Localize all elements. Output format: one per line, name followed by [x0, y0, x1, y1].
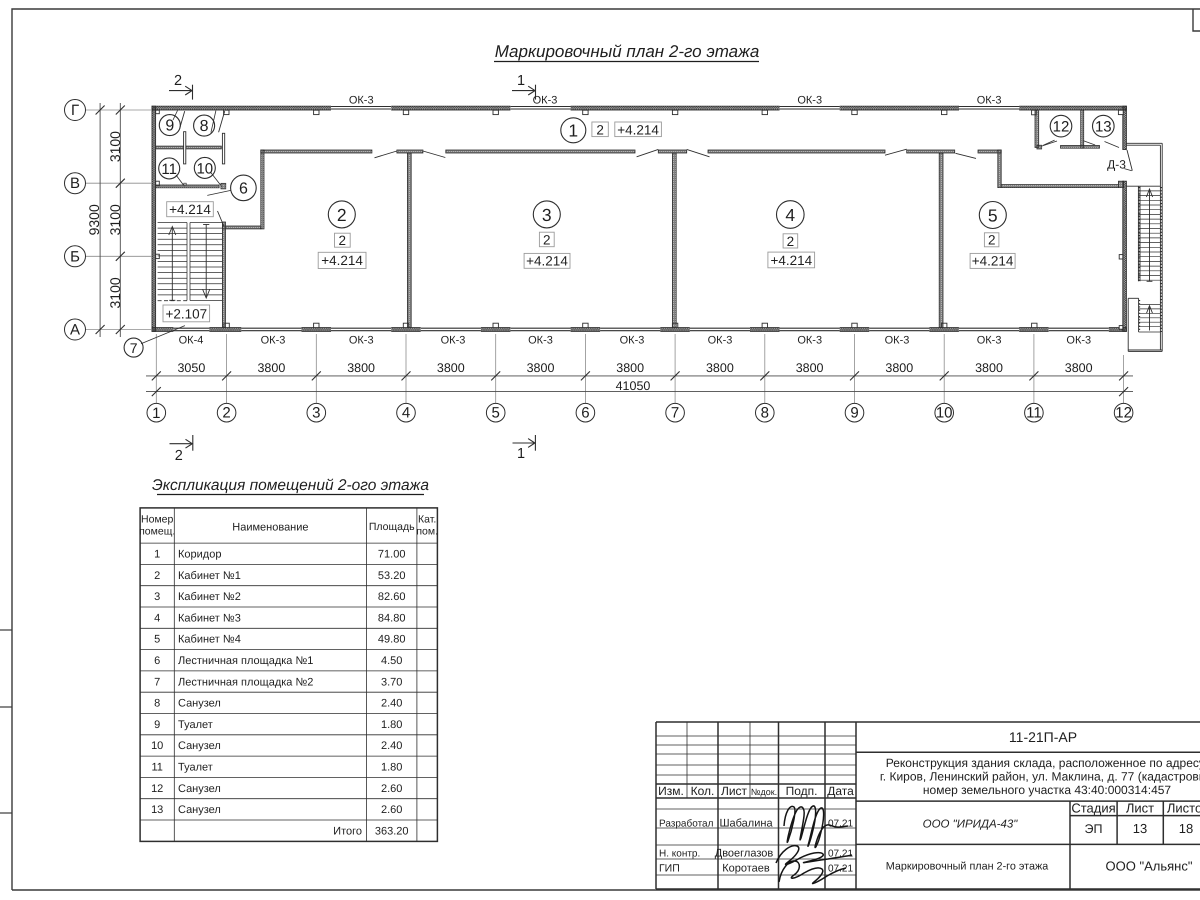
- svg-text:5: 5: [154, 634, 160, 646]
- svg-text:Реконструкция здания склада, р: Реконструкция здания склада, расположенн…: [886, 756, 1200, 770]
- svg-text:1: 1: [152, 405, 160, 422]
- svg-text:6: 6: [581, 404, 589, 421]
- svg-text:ОК-3: ОК-3: [620, 335, 645, 347]
- svg-text:Г: Г: [71, 102, 79, 119]
- svg-text:41050: 41050: [616, 379, 651, 393]
- svg-text:Н. контр.: Н. контр.: [659, 849, 700, 860]
- svg-text:ОК-4: ОК-4: [179, 335, 204, 347]
- svg-text:8: 8: [154, 698, 160, 710]
- svg-text:Кабинет №2: Кабинет №2: [178, 591, 241, 603]
- svg-text:363.20: 363.20: [375, 825, 409, 837]
- svg-text:3100: 3100: [107, 131, 123, 162]
- svg-text:11: 11: [1026, 404, 1042, 421]
- svg-text:9: 9: [165, 118, 174, 135]
- svg-text:3800: 3800: [706, 361, 734, 375]
- svg-text:ОК-3: ОК-3: [797, 94, 822, 106]
- svg-text:ООО "Альянс": ООО "Альянс": [1106, 859, 1193, 874]
- svg-text:г. Киров, Ленинский район, ул.: г. Киров, Ленинский район, ул. Маклина, …: [880, 770, 1200, 784]
- svg-text:+4.214: +4.214: [617, 122, 659, 137]
- svg-text:8: 8: [200, 118, 209, 135]
- svg-text:Д-3: Д-3: [1107, 157, 1126, 171]
- svg-text:Санузел: Санузел: [178, 698, 221, 710]
- svg-text:Шабалина: Шабалина: [719, 818, 773, 830]
- svg-text:Лист: Лист: [1126, 800, 1154, 815]
- svg-text:ОК-3: ОК-3: [441, 335, 466, 347]
- svg-text:49.80: 49.80: [378, 634, 406, 646]
- svg-text:ОК-3: ОК-3: [261, 335, 286, 347]
- svg-text:12: 12: [1053, 119, 1070, 136]
- svg-text:3: 3: [154, 591, 160, 603]
- svg-text:Номер: Номер: [141, 514, 173, 526]
- svg-text:13: 13: [151, 804, 163, 816]
- svg-text:5: 5: [492, 404, 500, 421]
- svg-text:Итого: Итого: [333, 825, 362, 837]
- svg-text:9300: 9300: [86, 204, 102, 235]
- svg-text:07.21: 07.21: [828, 819, 853, 830]
- svg-text:Листов: Листов: [1167, 800, 1200, 815]
- svg-text:1: 1: [517, 73, 525, 89]
- svg-text:53.20: 53.20: [378, 570, 406, 582]
- svg-text:Лестничная площадка №1: Лестничная площадка №1: [178, 655, 313, 667]
- svg-text:Кабинет №1: Кабинет №1: [178, 570, 241, 582]
- svg-text:13: 13: [1095, 119, 1112, 136]
- svg-text:12: 12: [1115, 404, 1132, 421]
- svg-text:Наименование: Наименование: [232, 522, 308, 534]
- svg-text:Туалет: Туалет: [178, 719, 213, 731]
- svg-text:3100: 3100: [107, 204, 123, 235]
- svg-text:2.60: 2.60: [381, 783, 402, 795]
- svg-text:Лист: Лист: [721, 784, 748, 798]
- svg-text:+2.107: +2.107: [165, 306, 207, 321]
- svg-text:8: 8: [761, 404, 769, 421]
- svg-text:4: 4: [154, 612, 160, 624]
- svg-text:1.80: 1.80: [381, 719, 402, 731]
- svg-text:2: 2: [787, 234, 795, 249]
- svg-text:3100: 3100: [107, 277, 123, 308]
- svg-text:Б: Б: [70, 248, 80, 265]
- svg-text:Лестничная площадка №2: Лестничная площадка №2: [178, 676, 313, 688]
- svg-text:+4.214: +4.214: [770, 253, 812, 268]
- svg-text:Маркировочный план 2-го этажа: Маркировочный план 2-го этажа: [495, 42, 760, 61]
- svg-text:1: 1: [517, 446, 525, 462]
- svg-text:2: 2: [174, 73, 182, 89]
- svg-text:ОК-3: ОК-3: [533, 94, 558, 106]
- svg-text:2.40: 2.40: [381, 698, 402, 710]
- svg-text:Кат.: Кат.: [418, 514, 436, 526]
- svg-text:ГИП: ГИП: [659, 863, 680, 875]
- svg-text:9: 9: [850, 404, 858, 421]
- svg-text:Стадия: Стадия: [1071, 800, 1115, 815]
- svg-text:ОК-3: ОК-3: [977, 335, 1002, 347]
- svg-text:ОК-3: ОК-3: [1066, 335, 1091, 347]
- svg-text:84.80: 84.80: [378, 612, 406, 624]
- svg-text:номер земельного участка 43:40: номер земельного участка 43:40:000314:45…: [923, 783, 1172, 797]
- svg-text:2: 2: [596, 122, 604, 137]
- svg-text:2: 2: [337, 205, 347, 225]
- svg-text:1: 1: [154, 549, 160, 561]
- svg-text:Санузел: Санузел: [178, 740, 221, 752]
- svg-text:ОК-3: ОК-3: [797, 335, 822, 347]
- svg-text:+4.214: +4.214: [169, 202, 211, 217]
- svg-text:11: 11: [161, 161, 177, 178]
- svg-text:3800: 3800: [885, 361, 913, 375]
- svg-text:3.70: 3.70: [381, 676, 402, 688]
- svg-text:2.40: 2.40: [381, 740, 402, 752]
- svg-text:Экспликация помещений 2-ого эт: Экспликация помещений 2-ого этажа: [152, 477, 429, 494]
- svg-text:3800: 3800: [1065, 361, 1093, 375]
- svg-text:3: 3: [312, 404, 320, 421]
- svg-text:В: В: [70, 175, 80, 192]
- svg-text:3800: 3800: [257, 361, 285, 375]
- svg-text:10: 10: [936, 404, 953, 421]
- svg-text:71.00: 71.00: [378, 549, 406, 561]
- svg-text:помещ.: помещ.: [139, 526, 175, 538]
- svg-text:ЭП: ЭП: [1085, 822, 1103, 836]
- svg-text:3800: 3800: [796, 361, 824, 375]
- svg-text:Подп.: Подп.: [786, 784, 818, 798]
- svg-text:Санузел: Санузел: [178, 783, 221, 795]
- svg-text:Площадь: Площадь: [369, 521, 415, 533]
- svg-text:Маркировочный план 2-го этажа: Маркировочный план 2-го этажа: [886, 861, 1048, 873]
- svg-text:3800: 3800: [347, 361, 375, 375]
- svg-text:Туалет: Туалет: [178, 762, 213, 774]
- svg-text:Кабинет №4: Кабинет №4: [178, 634, 241, 646]
- svg-text:11: 11: [151, 762, 162, 774]
- svg-text:2: 2: [988, 233, 996, 248]
- svg-text:Двоеглазов: Двоеглазов: [715, 848, 774, 860]
- svg-text:3800: 3800: [616, 361, 644, 375]
- svg-text:1: 1: [568, 121, 578, 141]
- svg-text:3800: 3800: [527, 361, 555, 375]
- svg-text:ОК-3: ОК-3: [708, 335, 733, 347]
- svg-text:Кол.: Кол.: [691, 784, 715, 798]
- svg-text:ОК-3: ОК-3: [977, 94, 1002, 106]
- svg-text:3800: 3800: [437, 361, 465, 375]
- svg-text:+4.214: +4.214: [321, 253, 363, 268]
- svg-text:10: 10: [196, 160, 213, 177]
- svg-text:4: 4: [402, 404, 410, 421]
- svg-text:ОК-3: ОК-3: [349, 335, 374, 347]
- svg-text:13: 13: [1133, 821, 1147, 836]
- svg-text:4.50: 4.50: [381, 655, 402, 667]
- svg-text:7: 7: [154, 676, 160, 688]
- svg-text:2: 2: [222, 404, 230, 421]
- svg-text:1.80: 1.80: [381, 762, 402, 774]
- svg-text:4: 4: [785, 205, 795, 225]
- svg-text:ООО "ИРИДА-43": ООО "ИРИДА-43": [923, 819, 1019, 831]
- svg-text:Разработал: Разработал: [659, 819, 714, 830]
- svg-text:2: 2: [339, 233, 347, 248]
- svg-text:2: 2: [543, 232, 551, 247]
- svg-text:82.60: 82.60: [378, 591, 406, 603]
- svg-text:12: 12: [151, 783, 163, 795]
- svg-text:Санузел: Санузел: [178, 804, 221, 816]
- svg-text:Кабинет №3: Кабинет №3: [178, 612, 241, 624]
- svg-text:ОК-3: ОК-3: [885, 335, 910, 347]
- svg-text:ОК-3: ОК-3: [349, 94, 374, 106]
- svg-text:7: 7: [130, 340, 138, 356]
- svg-text:3050: 3050: [177, 361, 205, 375]
- svg-text:Дата: Дата: [827, 784, 854, 798]
- svg-text:5: 5: [988, 205, 998, 225]
- svg-text:7: 7: [671, 404, 679, 421]
- svg-text:6: 6: [239, 181, 248, 198]
- svg-text:Изм.: Изм.: [658, 784, 684, 798]
- svg-text:А: А: [70, 322, 80, 339]
- svg-text:10: 10: [151, 740, 163, 752]
- svg-text:Коротаев: Коротаев: [722, 863, 770, 875]
- svg-text:2.60: 2.60: [381, 804, 402, 816]
- svg-text:2: 2: [154, 570, 160, 582]
- svg-text:Коридор: Коридор: [178, 549, 221, 561]
- svg-text:пом.: пом.: [416, 526, 438, 538]
- svg-text:+4.214: +4.214: [526, 254, 568, 269]
- svg-text:№док.: №док.: [751, 787, 777, 797]
- svg-text:6: 6: [154, 655, 160, 667]
- svg-text:18: 18: [1179, 821, 1193, 836]
- svg-text:9: 9: [154, 719, 160, 731]
- svg-text:11-21П-АР: 11-21П-АР: [1009, 729, 1077, 745]
- svg-text:3800: 3800: [975, 361, 1003, 375]
- svg-text:2: 2: [175, 448, 183, 464]
- svg-text:ОК-3: ОК-3: [528, 335, 553, 347]
- svg-text:+4.214: +4.214: [972, 254, 1014, 269]
- svg-text:3: 3: [542, 205, 552, 225]
